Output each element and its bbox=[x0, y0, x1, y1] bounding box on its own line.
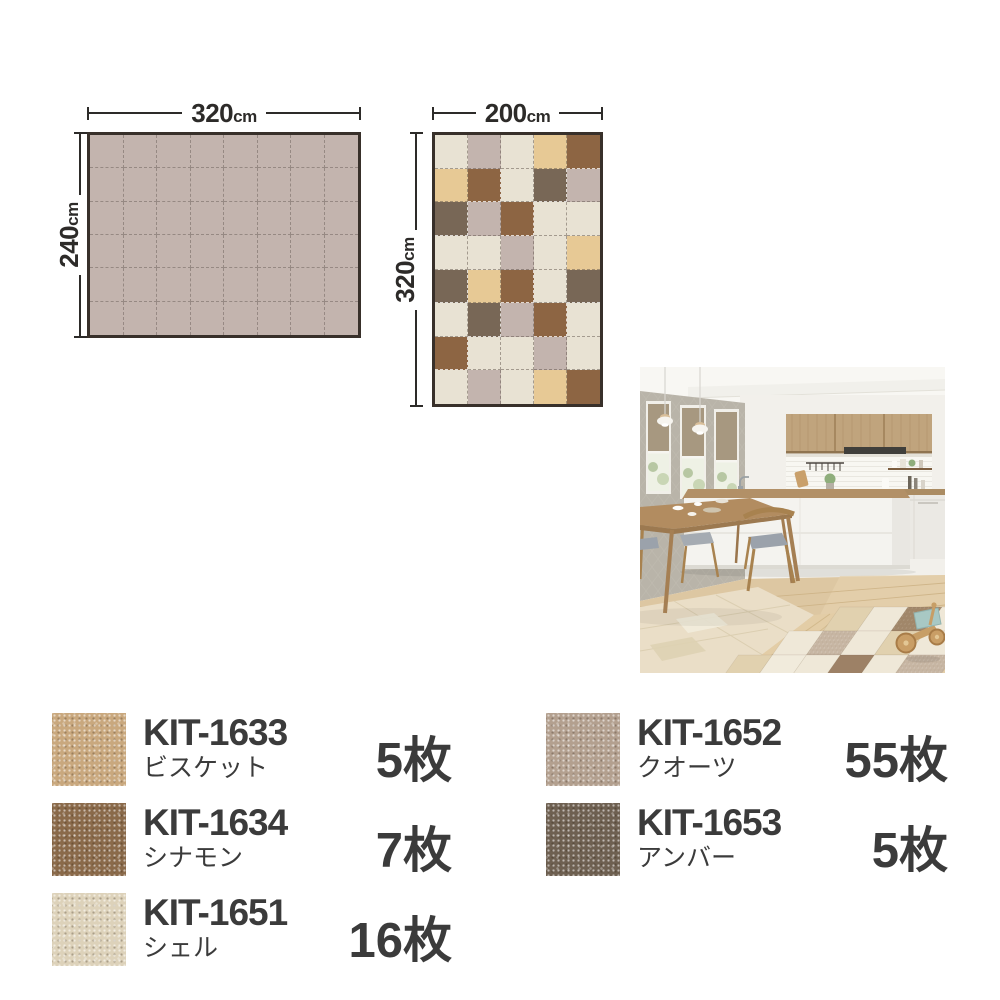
plain-rug-height-dimension: 240cm bbox=[73, 132, 87, 338]
tile-quartz bbox=[191, 202, 225, 235]
plain-rug-width-dimension: 320cm bbox=[87, 98, 361, 128]
tile-shell bbox=[501, 135, 534, 169]
tile-quartz bbox=[90, 235, 124, 268]
tile-shell bbox=[435, 303, 468, 337]
tile-quartz bbox=[224, 268, 258, 301]
tile-cinnamon bbox=[468, 169, 501, 203]
tile-count: 55枚 bbox=[844, 721, 948, 792]
product-code: KIT-1651 bbox=[143, 893, 287, 932]
checkered-rug-grid bbox=[432, 132, 603, 407]
tile-cinnamon bbox=[534, 303, 567, 337]
tile-cinnamon bbox=[501, 202, 534, 236]
product-code: KIT-1652 bbox=[637, 713, 781, 752]
dimension-line bbox=[434, 112, 476, 114]
tile-quartz bbox=[258, 302, 292, 335]
tile-quartz bbox=[90, 135, 124, 168]
window-icon bbox=[680, 405, 706, 499]
tile-shell bbox=[468, 337, 501, 371]
tile-quartz bbox=[90, 168, 124, 201]
tile-amber bbox=[435, 270, 468, 304]
tile-quartz bbox=[325, 135, 359, 168]
tile-cinnamon bbox=[435, 337, 468, 371]
tile-shell bbox=[501, 370, 534, 404]
legend-text: KIT-1634 シナモン bbox=[143, 803, 287, 873]
dimension-tick bbox=[410, 405, 423, 407]
tile-quartz bbox=[157, 235, 191, 268]
checkered-rug-width-label: 200cm bbox=[485, 100, 550, 126]
legend-column-left: KIT-1633 ビスケット 5枚 KIT-1634 シナモン 7枚 KIT-1… bbox=[52, 713, 452, 983]
tile-quartz bbox=[258, 135, 292, 168]
tile-quartz bbox=[224, 202, 258, 235]
tile-amber bbox=[534, 169, 567, 203]
tile-quartz bbox=[157, 268, 191, 301]
tile-quartz bbox=[468, 135, 501, 169]
tile-count: 5枚 bbox=[376, 721, 452, 792]
tile-quartz bbox=[191, 268, 225, 301]
legend-row: KIT-1653 アンバー 5枚 bbox=[546, 803, 948, 876]
tile-quartz bbox=[90, 268, 124, 301]
tile-quartz bbox=[534, 337, 567, 371]
kitchen-photo bbox=[640, 367, 945, 673]
legend-text: KIT-1651 シェル bbox=[143, 893, 287, 963]
tile-quartz bbox=[325, 302, 359, 335]
tile-biscuit bbox=[468, 270, 501, 304]
tile-quartz bbox=[325, 268, 359, 301]
product-code: KIT-1633 bbox=[143, 713, 287, 752]
tile-biscuit bbox=[534, 370, 567, 404]
tile-quartz bbox=[291, 168, 325, 201]
tile-shell bbox=[567, 202, 600, 236]
color-swatch-shell bbox=[52, 893, 126, 966]
tile-biscuit bbox=[435, 169, 468, 203]
tile-quartz bbox=[258, 202, 292, 235]
tile-quartz bbox=[567, 169, 600, 203]
tile-quartz bbox=[224, 235, 258, 268]
dimension-line bbox=[79, 134, 81, 195]
tile-shell bbox=[534, 202, 567, 236]
plain-rug-width-label: 320cm bbox=[191, 100, 256, 126]
dimension-line bbox=[559, 112, 601, 114]
color-swatch-cinnamon bbox=[52, 803, 126, 876]
legend-text: KIT-1633 ビスケット bbox=[143, 713, 287, 783]
tile-quartz bbox=[468, 202, 501, 236]
tile-shell bbox=[534, 236, 567, 270]
product-code: KIT-1634 bbox=[143, 803, 287, 842]
window-icon bbox=[714, 409, 739, 502]
color-name: シナモン bbox=[143, 844, 287, 873]
tile-quartz bbox=[191, 302, 225, 335]
tile-quartz bbox=[325, 168, 359, 201]
kitchen-photo-illustration bbox=[640, 367, 945, 673]
tile-biscuit bbox=[534, 135, 567, 169]
dimension-tick bbox=[601, 107, 603, 120]
product-layout-sheet: { "palette": { "shell": "#e8e2d3", "quar… bbox=[0, 0, 1000, 1000]
legend-row: KIT-1633 ビスケット 5枚 bbox=[52, 713, 452, 786]
tile-amber bbox=[468, 303, 501, 337]
dimension-line bbox=[415, 134, 417, 230]
color-name: アンバー bbox=[637, 844, 781, 873]
color-swatch-amber bbox=[546, 803, 620, 876]
tile-cinnamon bbox=[501, 270, 534, 304]
legend-row: KIT-1651 シェル 16枚 bbox=[52, 893, 452, 966]
tile-shell bbox=[501, 337, 534, 371]
legend-text: KIT-1653 アンバー bbox=[637, 803, 781, 873]
tile-quartz bbox=[90, 302, 124, 335]
tile-quartz bbox=[258, 268, 292, 301]
tile-shell bbox=[567, 303, 600, 337]
tile-quartz bbox=[124, 202, 158, 235]
checkered-rug-height-label: 320cm bbox=[392, 237, 418, 302]
tile-amber bbox=[567, 270, 600, 304]
tile-quartz bbox=[191, 168, 225, 201]
tile-quartz bbox=[90, 202, 124, 235]
tile-quartz bbox=[501, 236, 534, 270]
dimension-tick bbox=[74, 336, 87, 338]
color-name: ビスケット bbox=[143, 754, 287, 783]
checkered-rug-height-dimension: 320cm bbox=[409, 132, 423, 407]
tile-quartz bbox=[291, 202, 325, 235]
tile-amber bbox=[435, 202, 468, 236]
tile-quartz bbox=[468, 370, 501, 404]
tile-quartz bbox=[124, 168, 158, 201]
tile-shell bbox=[435, 135, 468, 169]
tile-count: 7枚 bbox=[376, 811, 452, 882]
legend-row: KIT-1634 シナモン 7枚 bbox=[52, 803, 452, 876]
tile-quartz bbox=[124, 302, 158, 335]
plain-rug-grid bbox=[87, 132, 361, 338]
tile-cinnamon bbox=[567, 135, 600, 169]
tile-shell bbox=[534, 270, 567, 304]
range-hood bbox=[844, 447, 906, 454]
tile-quartz bbox=[325, 202, 359, 235]
tile-quartz bbox=[191, 135, 225, 168]
tile-cinnamon bbox=[567, 370, 600, 404]
tile-quartz bbox=[124, 268, 158, 301]
tile-quartz bbox=[224, 135, 258, 168]
tile-quartz bbox=[124, 135, 158, 168]
tile-quartz bbox=[291, 268, 325, 301]
tile-quartz bbox=[191, 235, 225, 268]
tile-biscuit bbox=[567, 236, 600, 270]
checkered-rug-width-dimension: 200cm bbox=[432, 98, 603, 128]
dimension-tick bbox=[359, 107, 361, 120]
tile-quartz bbox=[224, 168, 258, 201]
tile-quartz bbox=[291, 302, 325, 335]
color-name: シェル bbox=[143, 934, 287, 963]
product-code: KIT-1653 bbox=[637, 803, 781, 842]
tile-shell bbox=[468, 236, 501, 270]
tile-quartz bbox=[258, 168, 292, 201]
dimension-line bbox=[266, 112, 359, 114]
legend-column-right: KIT-1652 クオーツ 55枚 KIT-1653 アンバー 5枚 bbox=[546, 713, 948, 893]
legend-row: KIT-1652 クオーツ 55枚 bbox=[546, 713, 948, 786]
legend-text: KIT-1652 クオーツ bbox=[637, 713, 781, 783]
color-swatch-quartz bbox=[546, 713, 620, 786]
color-name: クオーツ bbox=[637, 754, 781, 783]
tile-quartz bbox=[224, 302, 258, 335]
tile-count: 5枚 bbox=[872, 811, 948, 882]
tile-shell bbox=[501, 169, 534, 203]
tile-quartz bbox=[157, 302, 191, 335]
tile-quartz bbox=[157, 202, 191, 235]
tile-count: 16枚 bbox=[348, 901, 452, 972]
color-swatch-biscuit bbox=[52, 713, 126, 786]
dimension-line bbox=[79, 275, 81, 336]
tile-quartz bbox=[258, 235, 292, 268]
plain-rug-height-label: 240cm bbox=[56, 202, 82, 267]
tile-shell bbox=[567, 337, 600, 371]
tile-quartz bbox=[124, 235, 158, 268]
tile-quartz bbox=[325, 235, 359, 268]
tile-quartz bbox=[157, 135, 191, 168]
tile-quartz bbox=[291, 235, 325, 268]
tile-shell bbox=[435, 370, 468, 404]
tile-quartz bbox=[501, 303, 534, 337]
tile-shell bbox=[435, 236, 468, 270]
tile-quartz bbox=[291, 135, 325, 168]
tile-quartz bbox=[157, 168, 191, 201]
dimension-line bbox=[415, 310, 417, 406]
dimension-line bbox=[89, 112, 182, 114]
